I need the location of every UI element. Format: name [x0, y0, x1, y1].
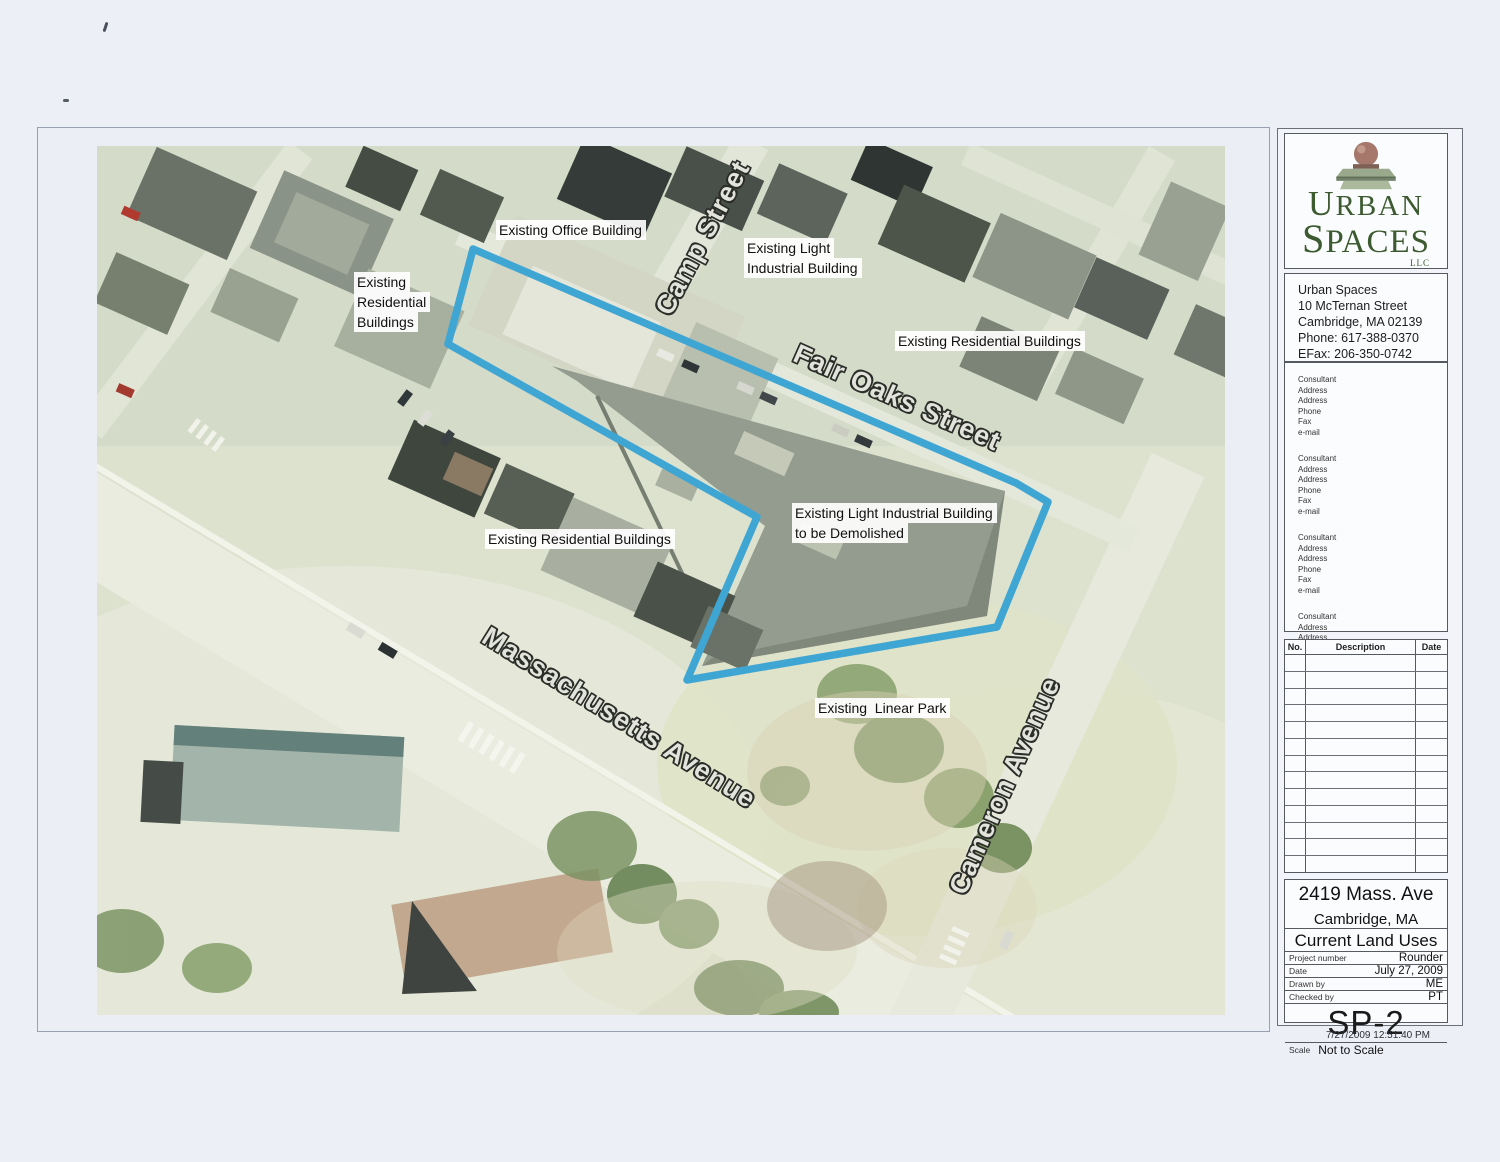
project-date-row: Date July 27, 2009 [1285, 964, 1447, 977]
revision-empty-row [1285, 705, 1447, 722]
aerial-photo-graphic [97, 146, 1225, 1015]
scale-row: Scale Not to Scale [1285, 1042, 1447, 1057]
logo-word-spaces: SPACES [1302, 219, 1430, 259]
consultant-line: Phone [1298, 565, 1447, 576]
label-line: Existing Residential Buildings [485, 529, 675, 549]
logo-word-urban: URBAN [1308, 186, 1424, 221]
consultant-line: Consultant [1298, 454, 1447, 465]
firm-efax: EFax: 206-350-0742 [1298, 346, 1447, 362]
scan-artifact [63, 99, 69, 102]
consultant-line: Consultant [1298, 375, 1447, 386]
label-line: Existing Office Building [496, 220, 646, 240]
finial-icon [1323, 140, 1409, 192]
label-existing-residential-south: Existing Residential Buildings [485, 529, 675, 549]
label-existing-linear-park: Existing Linear Park [815, 698, 950, 718]
label-existing-office-building: Existing Office Building [496, 220, 646, 240]
consultant-block: Consultant Address Address Phone Fax e-m… [1298, 454, 1447, 517]
label-line: Existing Residential Buildings [895, 331, 1085, 351]
logo-box: URBAN SPACES LLC [1284, 133, 1448, 269]
label-building-to-be-demolished: Existing Light Industrial Building to be… [792, 503, 997, 543]
scan-artifact [103, 22, 109, 32]
consultant-line: e-mail [1298, 586, 1447, 597]
revision-empty-row [1285, 689, 1447, 706]
consultant-block: Consultant Address Address Phone Fax e-m… [1298, 375, 1447, 438]
revision-empty-row [1285, 672, 1447, 689]
consultant-line: Address [1298, 396, 1447, 407]
consultant-line: Address [1298, 475, 1447, 486]
project-info-box: 2419 Mass. Ave Cambridge, MA Current Lan… [1284, 879, 1448, 1023]
field-label: Drawn by [1289, 979, 1325, 989]
project-city: Cambridge, MA [1285, 911, 1447, 928]
firm-address-line2: Cambridge, MA 02139 [1298, 314, 1447, 330]
aerial-photo: Camp Street Fair Oaks Street Massachuset… [97, 146, 1225, 1015]
revision-empty-row [1285, 789, 1447, 806]
revision-header-no: No. [1285, 640, 1306, 654]
revision-empty-row [1285, 739, 1447, 756]
field-value: Rounder [1399, 952, 1443, 964]
field-value: PT [1428, 991, 1443, 1003]
revision-empty-row [1285, 856, 1447, 872]
firm-phone: Phone: 617-388-0370 [1298, 330, 1447, 346]
consultant-line: Consultant [1298, 612, 1447, 623]
consultant-line: Fax [1298, 417, 1447, 428]
consultant-line: Address [1298, 623, 1447, 634]
consultant-line: e-mail [1298, 428, 1447, 439]
consultant-line: e-mail [1298, 507, 1447, 518]
field-value: ME [1426, 978, 1443, 990]
revision-empty-row [1285, 722, 1447, 739]
revision-empty-row [1285, 839, 1447, 856]
field-label: Checked by [1289, 992, 1334, 1002]
revision-empty-row [1285, 655, 1447, 672]
revision-header-row: No. Description Date [1285, 640, 1447, 655]
field-label: Date [1289, 966, 1307, 976]
revision-empty-row [1285, 806, 1447, 823]
title-block: URBAN SPACES LLC Urban Spaces 10 McTerna… [1277, 128, 1463, 1026]
consultant-line: Fax [1298, 496, 1447, 507]
checked-by-row: Checked by PT [1285, 990, 1447, 1003]
consultant-line: Fax [1298, 575, 1447, 586]
label-line: Existing [354, 272, 410, 292]
label-existing-light-industrial: Existing Light Industrial Building [744, 238, 862, 278]
logo-suffix-llc: LLC [1302, 259, 1430, 268]
consultant-line: Address [1298, 465, 1447, 476]
consultant-line: Phone [1298, 486, 1447, 497]
consultants-box: Consultant Address Address Phone Fax e-m… [1284, 362, 1448, 632]
project-address-section: 2419 Mass. Ave Cambridge, MA [1285, 880, 1447, 928]
consultant-line: Consultant [1298, 533, 1447, 544]
revision-empty-row [1285, 756, 1447, 773]
field-label: Project number [1289, 953, 1347, 963]
label-line: to be Demolished [792, 523, 908, 543]
label-line: Existing Light [744, 238, 834, 258]
revision-table: No. Description Date [1284, 639, 1448, 873]
firm-name: Urban Spaces [1298, 282, 1447, 298]
label-line: Industrial Building [744, 258, 862, 278]
scale-value: Not to Scale [1318, 1043, 1383, 1057]
firm-address-line1: 10 McTernan Street [1298, 298, 1447, 314]
label-existing-residential-northeast: Existing Residential Buildings [895, 331, 1085, 351]
site-plan-sheet: { "map": { "site_outline_color": "#3fa6d… [0, 0, 1500, 1162]
label-line: Buildings [354, 312, 418, 332]
firm-address-box: Urban Spaces 10 McTernan Street Cambridg… [1284, 273, 1448, 362]
consultant-block: Consultant Address Address Phone Fax e-m… [1298, 533, 1447, 596]
revision-header-description: Description [1306, 640, 1416, 654]
drawn-by-row: Drawn by ME [1285, 977, 1447, 990]
consultant-line: Address [1298, 554, 1447, 565]
label-line: Residential [354, 292, 430, 312]
consultant-line: Phone [1298, 407, 1447, 418]
print-timestamp: 7/27/2009 12:51:40 PM [1326, 1030, 1430, 1041]
label-line: Existing Light Industrial Building [792, 503, 997, 523]
project-number-row: Project number Rounder [1285, 951, 1447, 964]
field-value: July 27, 2009 [1375, 965, 1443, 977]
label-existing-residential-west: Existing Residential Buildings [354, 272, 430, 332]
scale-label: Scale [1289, 1045, 1310, 1055]
consultant-line: Address [1298, 386, 1447, 397]
consultant-line: Address [1298, 544, 1447, 555]
revision-header-date: Date [1416, 640, 1447, 654]
label-line: Existing Linear Park [815, 698, 950, 718]
sheet-title: Current Land Uses [1285, 928, 1447, 951]
revision-empty-row [1285, 772, 1447, 789]
revision-empty-row [1285, 823, 1447, 840]
project-address: 2419 Mass. Ave [1285, 884, 1447, 906]
